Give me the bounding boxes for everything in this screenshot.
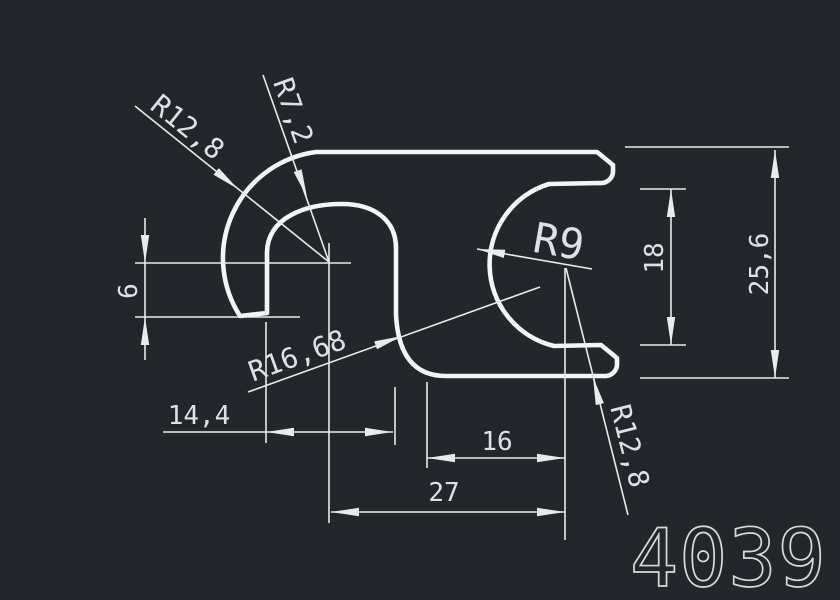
- drawing-background: [0, 0, 840, 600]
- dim-text-6: 6: [114, 283, 144, 299]
- dim-text-27: 27: [428, 478, 459, 508]
- dim-text-14-4: 14,4: [168, 401, 231, 431]
- radius-text-r9: R9: [530, 213, 588, 270]
- dim-text-16: 16: [481, 427, 512, 457]
- technical-drawing: 14,4 16 27 6 18 25,6 R12,8 R7,2 R9 R16,6…: [0, 0, 840, 600]
- dim-text-18: 18: [640, 242, 670, 273]
- part-number: 4039: [630, 512, 827, 600]
- cad-viewport[interactable]: 14,4 16 27 6 18 25,6 R12,8 R7,2 R9 R16,6…: [0, 0, 840, 600]
- dim-text-25-6: 25,6: [745, 233, 775, 296]
